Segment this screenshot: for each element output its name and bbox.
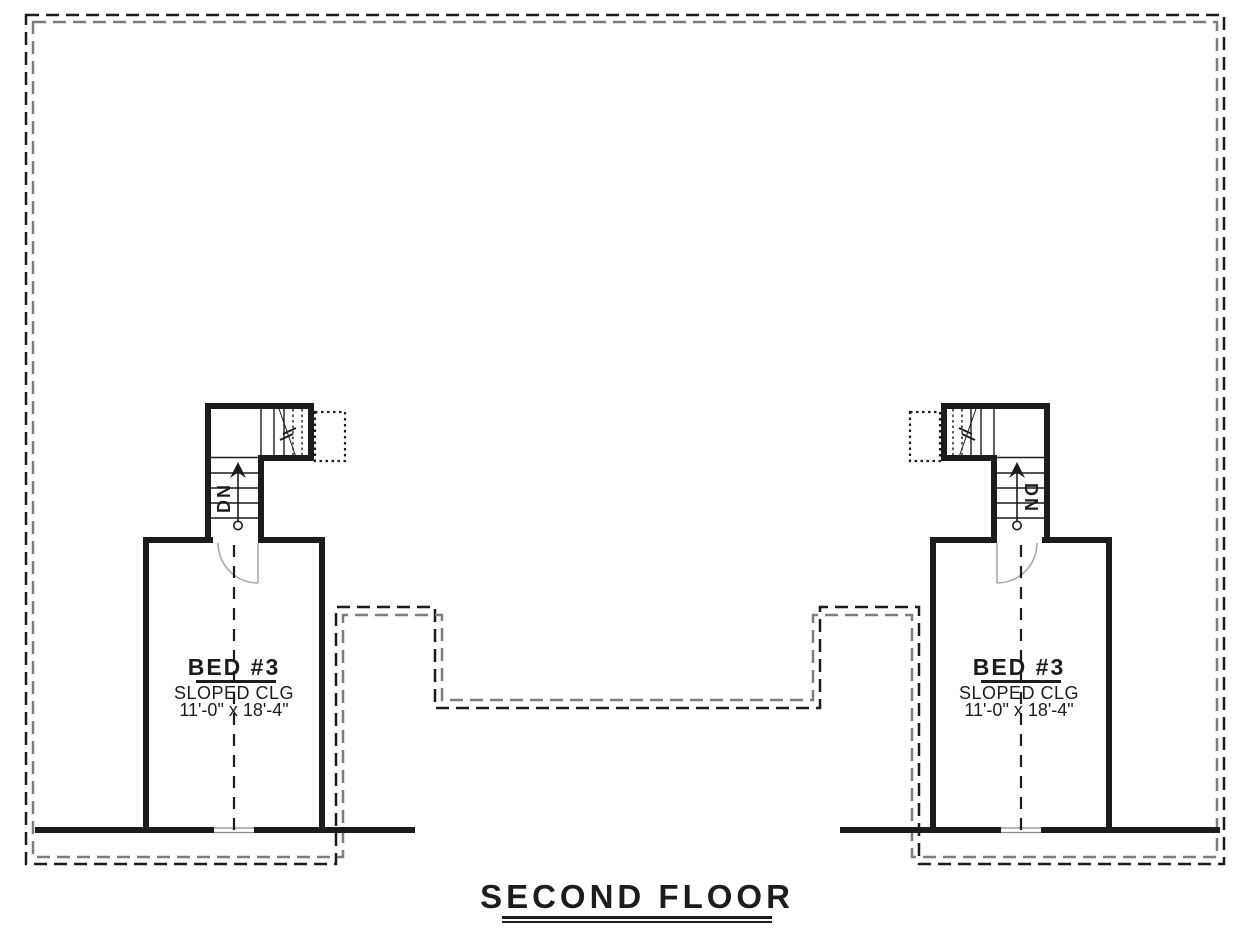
left-room-name: BED #3 (134, 655, 334, 679)
right-stair-dn-label: DN (1011, 478, 1051, 518)
right-stair-dotted-shaft (910, 412, 940, 461)
floor-plan-page: BED #3 SLOPED CLG 11'-0" x 18'-4" DN BED… (0, 0, 1255, 933)
drawing-title-underline-thick (502, 916, 772, 919)
right-door-swing (997, 543, 1037, 583)
right-unit-walls (840, 403, 1220, 833)
drawing-title: SECOND FLOOR (437, 878, 837, 916)
left-stair-dn-label: DN (204, 478, 244, 518)
right-room-dimensions: 11'-0" x 18'-4" (919, 701, 1119, 720)
left-unit-walls (35, 403, 415, 833)
left-door-swing (218, 543, 258, 583)
floor-plan-drawing (0, 0, 1255, 933)
left-room-dimensions: 11'-0" x 18'-4" (134, 701, 334, 720)
right-room-name: BED #3 (919, 655, 1119, 679)
drawing-title-underline-thin (502, 921, 772, 923)
left-stair-dotted-shaft (315, 412, 345, 461)
